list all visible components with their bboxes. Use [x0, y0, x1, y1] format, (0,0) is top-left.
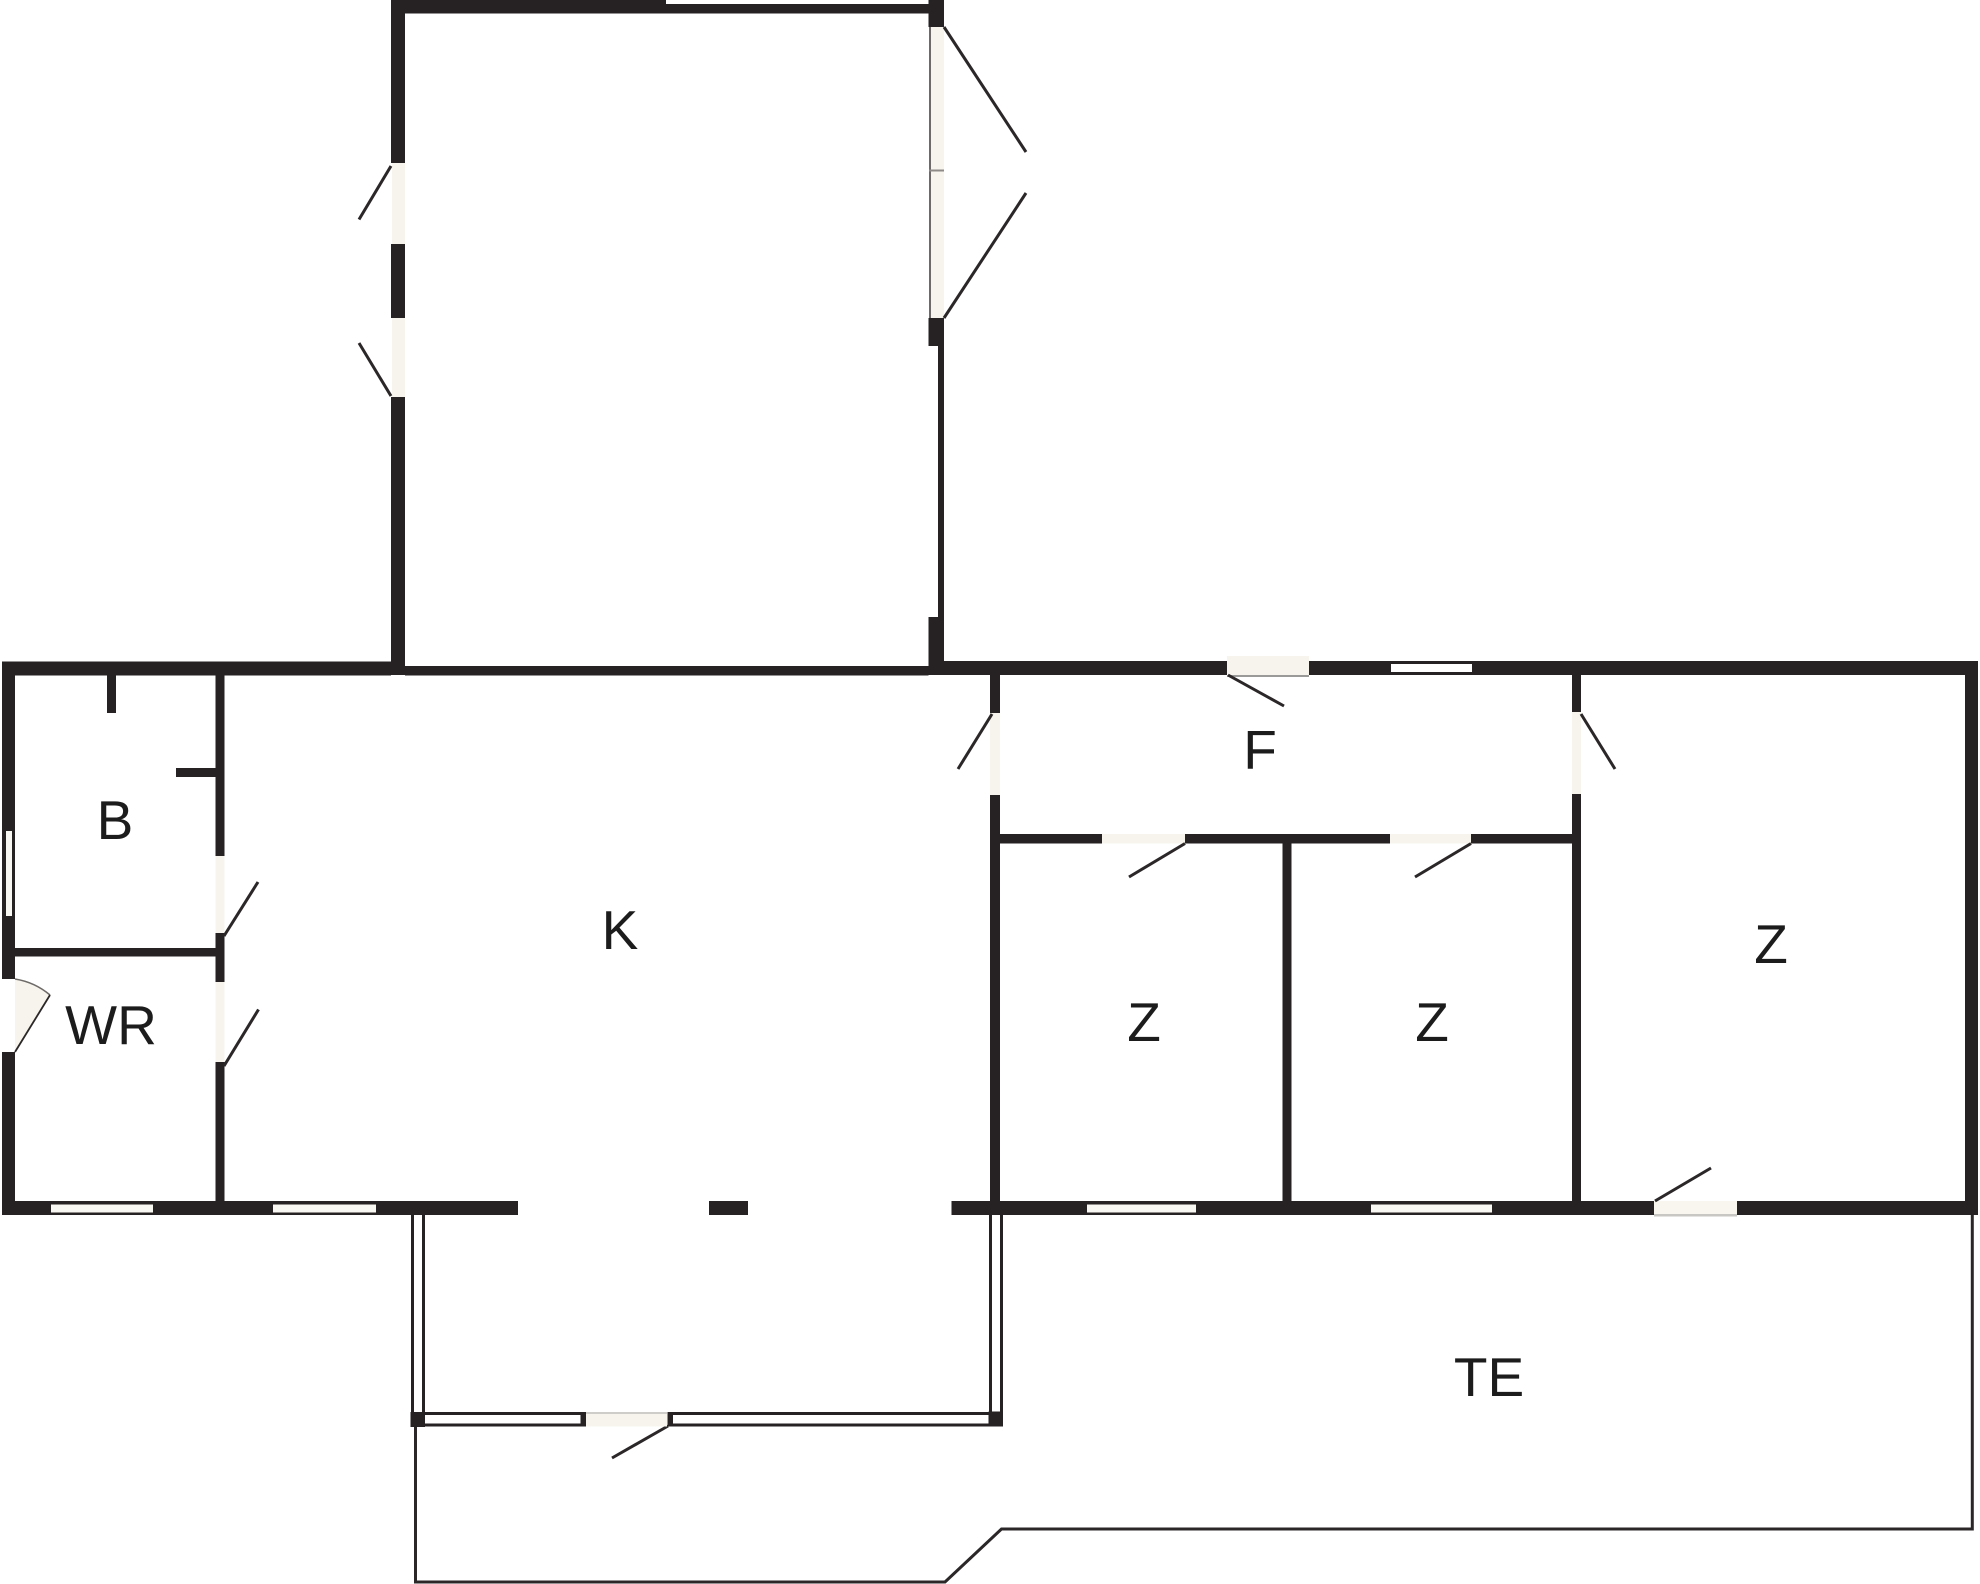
svg-text:K: K	[602, 899, 639, 961]
svg-text:B: B	[97, 789, 134, 851]
svg-text:WR: WR	[65, 994, 157, 1056]
svg-text:F: F	[1243, 719, 1277, 781]
svg-text:Z: Z	[1415, 991, 1449, 1053]
svg-text:Z: Z	[1127, 991, 1161, 1053]
svg-text:Z: Z	[1754, 913, 1788, 975]
svg-text:TE: TE	[1454, 1346, 1524, 1408]
